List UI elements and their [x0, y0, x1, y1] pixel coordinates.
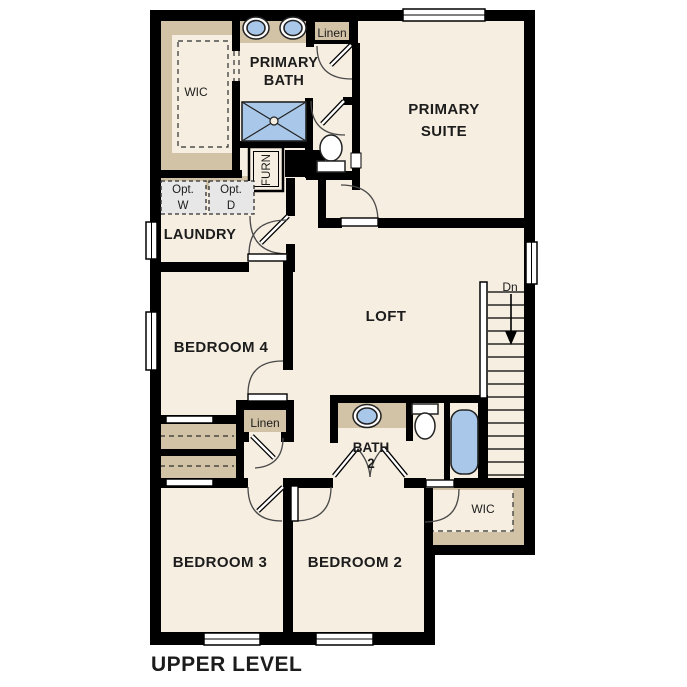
- stair-railing: [480, 282, 487, 398]
- door-primary-suite: [341, 218, 378, 226]
- label-opt-dryer-2: D: [227, 200, 235, 212]
- label-linen-upper: Linen: [317, 26, 346, 40]
- label-primary-suite-1: PRIMARY: [408, 101, 479, 118]
- label-stairs-dn: Dn: [502, 280, 517, 294]
- label-opt-washer-2: W: [178, 200, 189, 212]
- label-primary-wic: WIC: [184, 85, 208, 99]
- floor-plan: WIC PRIMARY BATH Linen PRIMARY SUITE FUR…: [0, 0, 687, 687]
- toilet-icon: [317, 135, 345, 172]
- wall-niche: [351, 153, 361, 168]
- label-opt-dryer-1: Opt.: [220, 184, 242, 196]
- plan-title: UPPER LEVEL: [151, 653, 302, 676]
- closet-slider-bedroom3: [166, 479, 213, 486]
- label-loft: LOFT: [366, 308, 407, 325]
- label-bedroom4: BEDROOM 4: [174, 339, 269, 356]
- door-bedroom2: [291, 486, 298, 521]
- label-bath2-2: 2: [367, 456, 375, 471]
- door-bedroom4: [248, 394, 287, 401]
- floor-plan-page: WIC PRIMARY BATH Linen PRIMARY SUITE FUR…: [0, 0, 687, 687]
- label-bedroom2: BEDROOM 2: [308, 554, 402, 571]
- label-bedroom3: BEDROOM 3: [173, 554, 267, 571]
- label-laundry: LAUNDRY: [164, 227, 236, 243]
- bedroom3-closet-strip: [161, 456, 236, 478]
- label-wic2: WIC: [471, 502, 495, 516]
- shower-icon: [242, 102, 306, 141]
- label-primary-suite-2: SUITE: [421, 123, 467, 140]
- label-linen-hall: Linen: [250, 416, 279, 430]
- label-bath2-1: BATH: [353, 440, 390, 455]
- label-primary-bath-2: BATH: [264, 73, 304, 89]
- label-furnace: FURN: [261, 154, 273, 186]
- bathtub-icon: [451, 410, 478, 474]
- closet-slider-bedroom4: [166, 416, 213, 423]
- label-opt-washer-1: Opt.: [172, 184, 194, 196]
- label-primary-bath-1: PRIMARY: [250, 55, 318, 71]
- door-wic2: [426, 480, 454, 487]
